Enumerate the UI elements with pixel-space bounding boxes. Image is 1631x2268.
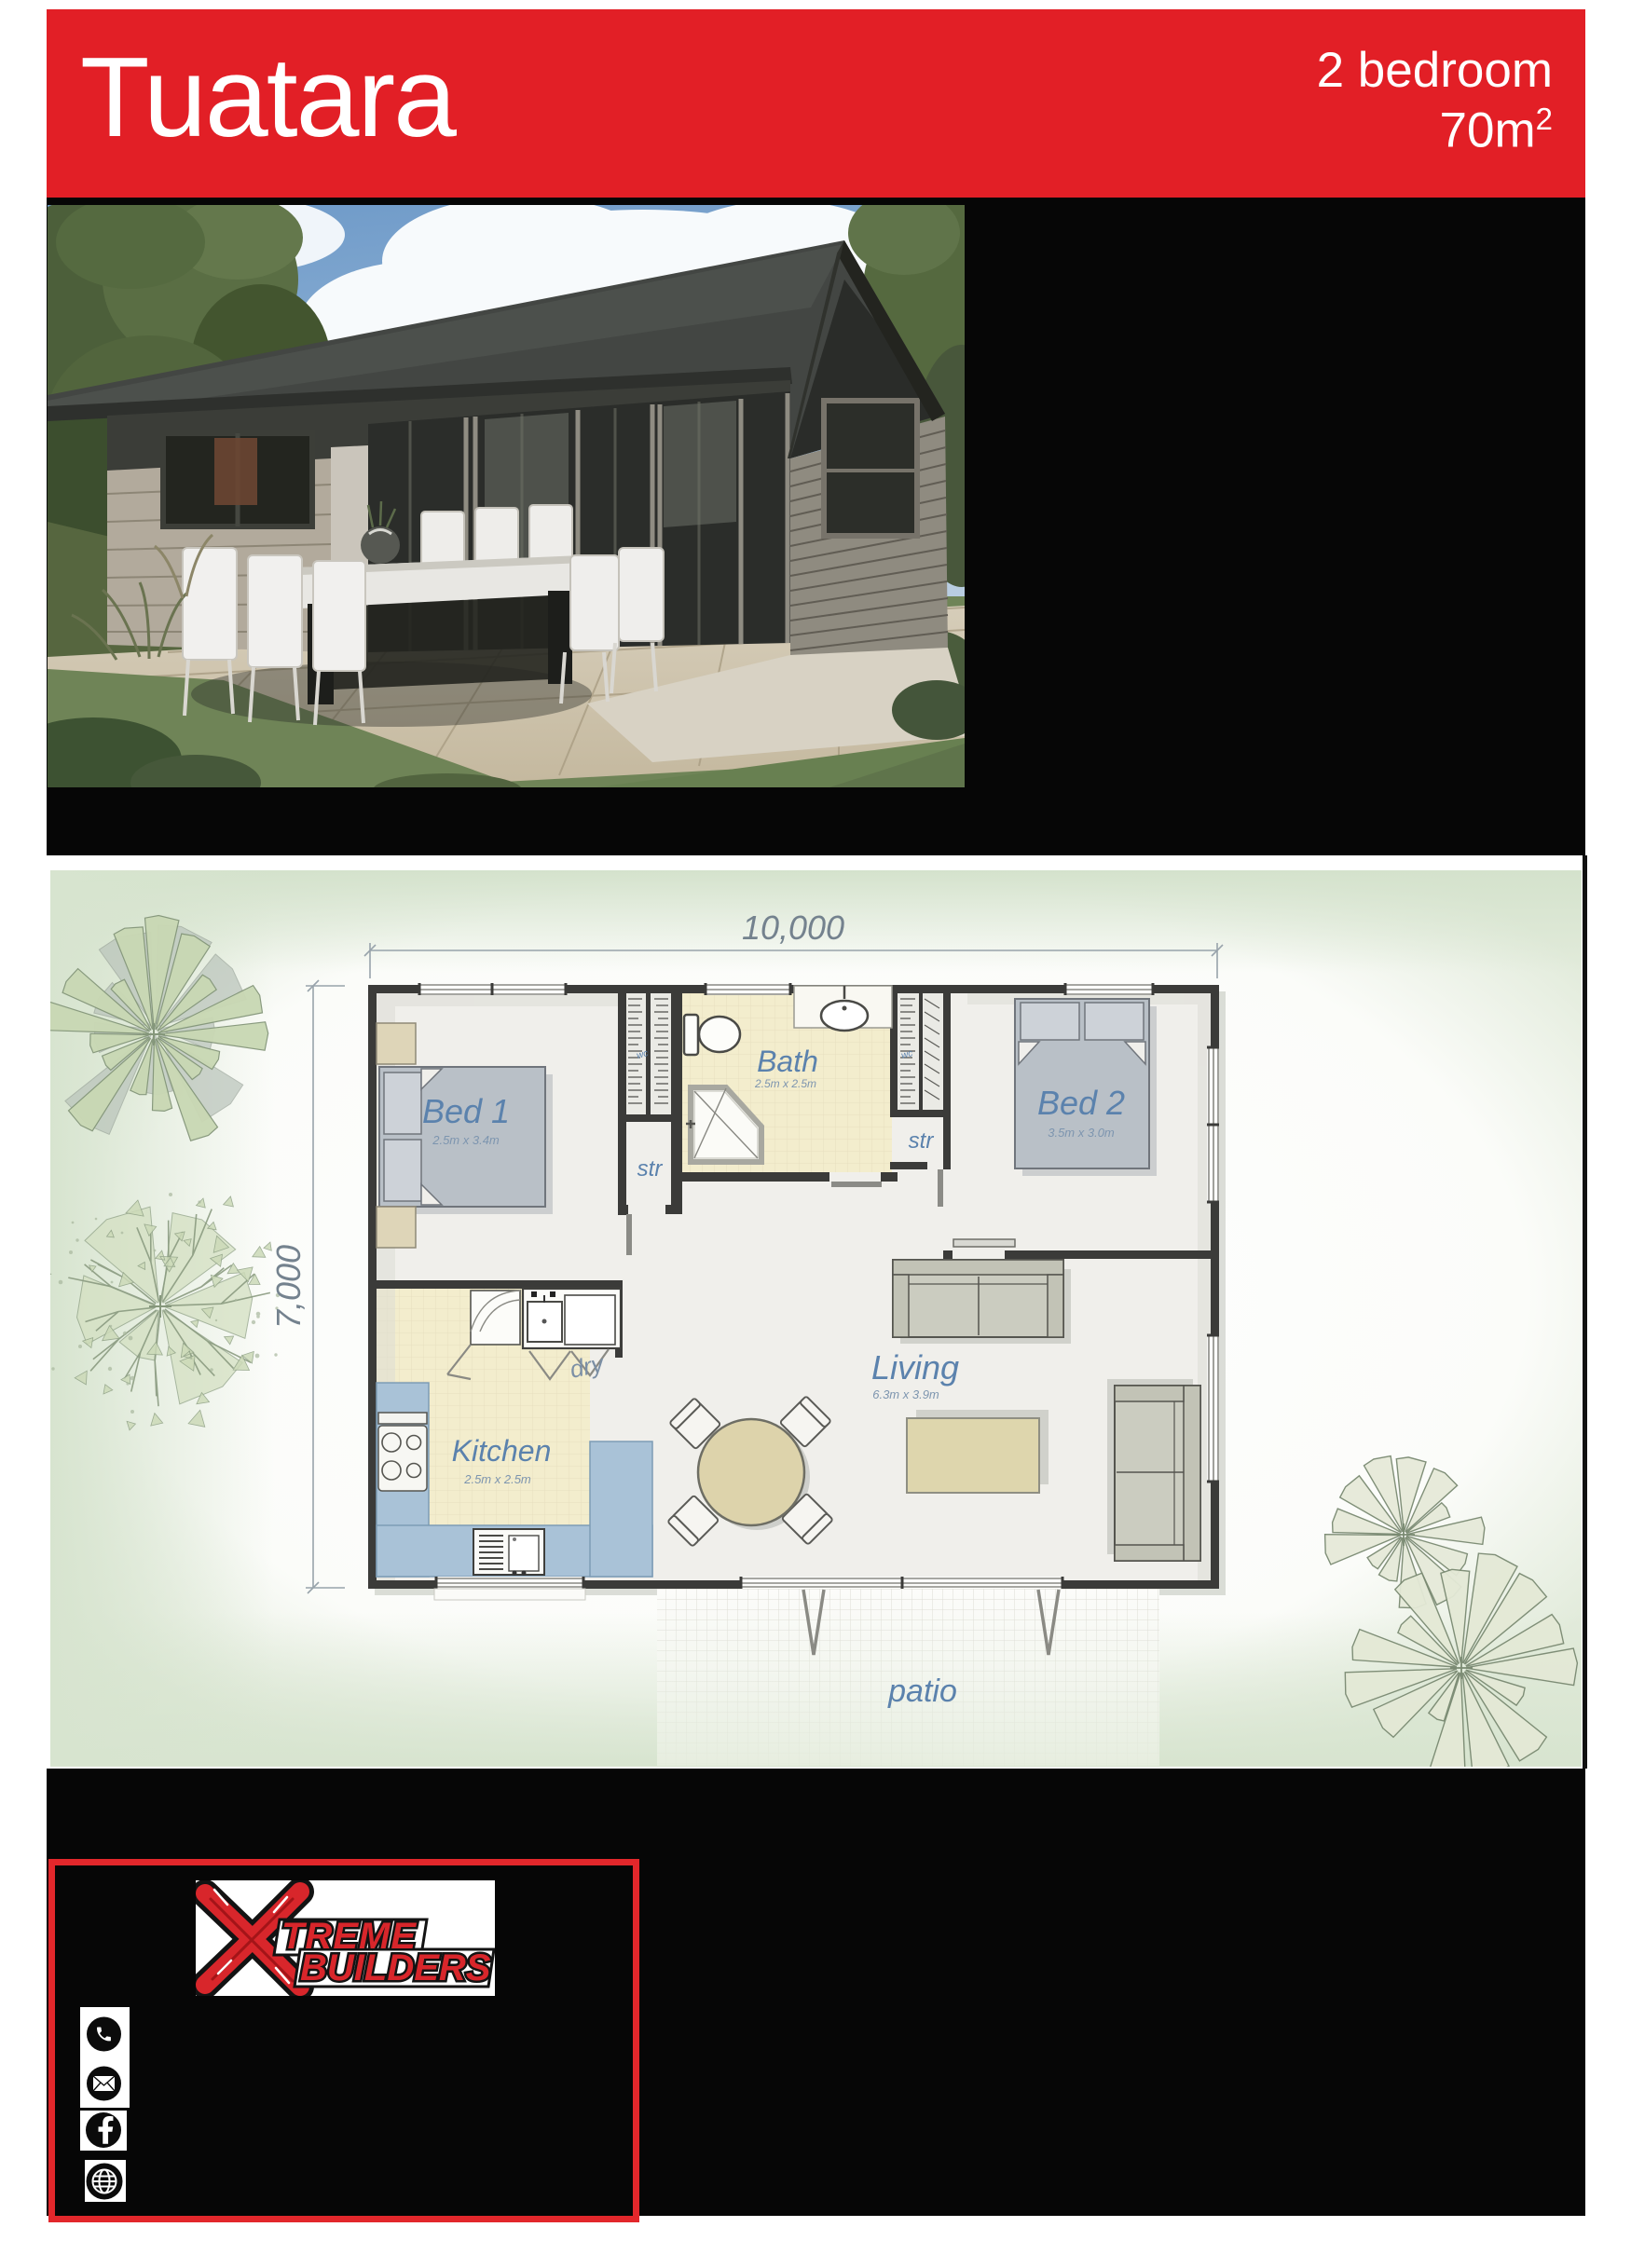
svg-text:str: str (637, 1156, 664, 1182)
svg-text:Bed 2: Bed 2 (1037, 1084, 1125, 1122)
svg-text:Living: Living (871, 1348, 959, 1387)
svg-text:str: str (909, 1128, 935, 1154)
svg-text:Bath: Bath (757, 1045, 818, 1078)
svg-text:BUILDERS: BUILDERS (300, 1947, 491, 1988)
svg-text:2.5m x 2.5m: 2.5m x 2.5m (754, 1077, 816, 1090)
svg-text:3.5m x 3.0m: 3.5m x 3.0m (1048, 1126, 1115, 1140)
svg-text:6.3m x 3.9m: 6.3m x 3.9m (872, 1387, 939, 1401)
svg-text:patio: patio (887, 1674, 957, 1709)
svg-text:7,000: 7,000 (269, 1245, 308, 1329)
svg-text:Kitchen: Kitchen (452, 1434, 552, 1468)
svg-text:2.5m x 2.5m: 2.5m x 2.5m (463, 1472, 531, 1486)
svg-text:10,000: 10,000 (742, 909, 844, 947)
svg-text:Bed 1: Bed 1 (422, 1092, 510, 1130)
svg-text:2.5m x 3.4m: 2.5m x 3.4m (432, 1133, 500, 1147)
